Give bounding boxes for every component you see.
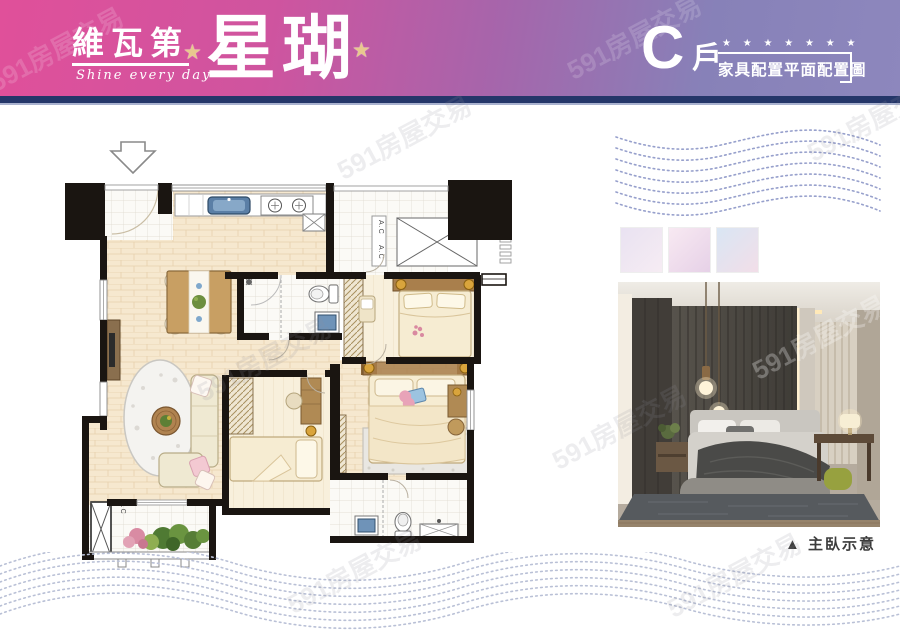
color-swatch-bluepink (716, 227, 759, 273)
brand-name: 維瓦第 (72, 27, 189, 66)
star-icon: ★ (183, 40, 202, 65)
plan-subtitle: 家具配置平面配置圖 (718, 52, 852, 83)
ac-label: A.C (377, 220, 384, 235)
brand-tagline: Shine every day (76, 68, 211, 83)
dining-area (165, 271, 231, 334)
kitchen (175, 194, 326, 216)
dotted-waves-top (612, 127, 882, 227)
photo-caption: ▲ 主臥示意 (618, 533, 876, 554)
entry-arrow (111, 142, 155, 173)
floor-plan: A.C A.C (63, 128, 513, 573)
star-icon: ★ (352, 38, 371, 63)
stars-row: ★ ★ ★ ★ ★ ★ ★ (718, 38, 852, 49)
page-title: 星瑚 (206, 6, 358, 90)
dotted-waves-bottom (0, 552, 900, 636)
header-banner: 591房屋交易 591房屋交易 維瓦第 Shine every day ★ 星瑚… (0, 0, 900, 105)
unit-letter: C (641, 18, 684, 78)
flyer-page: { "watermark": { "text": "591房屋交易" }, "h… (0, 0, 900, 636)
ac-label: A.C (377, 245, 384, 260)
navy-divider (0, 96, 900, 105)
color-swatch-lavender (620, 227, 663, 273)
master-bedroom-photo (618, 282, 880, 527)
watermark: 591房屋交易 (560, 0, 708, 87)
subtitle-block: ★ ★ ★ ★ ★ ★ ★ 家具配置平面配置圖 (718, 38, 852, 83)
color-swatch-pink (668, 227, 711, 273)
